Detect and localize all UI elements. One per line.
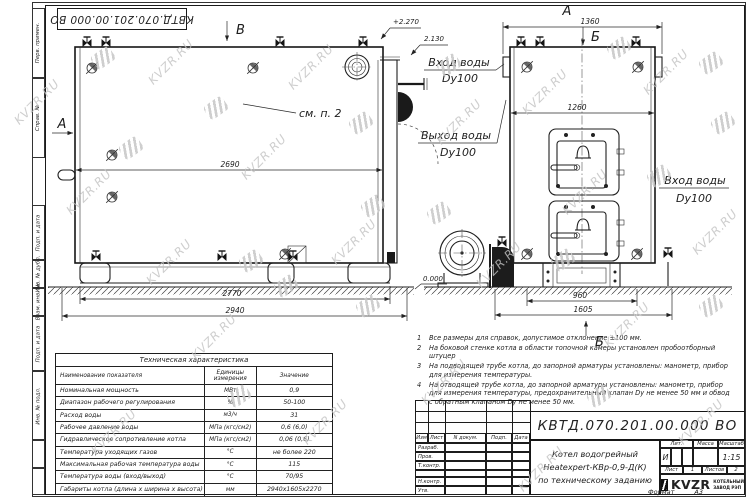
notes-list: 1Все размеры для справок, допустимое отк… <box>417 334 730 408</box>
table-row: Расход водым3/ч31 <box>56 410 332 422</box>
lit-header: Лит. <box>660 440 693 448</box>
outlet-label: Выход воды Dy100 <box>418 100 506 159</box>
side-valve <box>664 248 673 258</box>
table-row: Диапазон рабочего регулирования%50-100 <box>56 397 332 409</box>
section-a-label: А <box>57 117 67 132</box>
col-list: Лист <box>428 433 445 443</box>
margin-box-podp-data-2: Подп. и дата <box>32 316 45 371</box>
front-view <box>503 37 673 287</box>
top-doc-number-stamp: КВТД.070.201.00.000 ВО <box>57 8 187 30</box>
col-izm: Изм <box>415 433 428 443</box>
svg-text:Выход воды: Выход воды <box>421 129 491 142</box>
svg-text:Вход воды: Вход воды <box>664 174 726 187</box>
table-row: Температура воды (вход/выход)°С70/95 <box>56 471 332 483</box>
sheets-label: Листов <box>702 466 727 474</box>
margin-box-podp-data-1: Подп. и дата <box>32 205 45 260</box>
inlet-label-right: Вход воды Dy100 <box>659 174 729 205</box>
table-row: Габариты котла (длина х ширина х высота)… <box>56 484 332 496</box>
safety-valve <box>276 37 285 47</box>
mass-header: Масса <box>693 440 718 448</box>
margin-box-sprav-no: Справ. № <box>32 78 45 158</box>
tech-characteristics-table: Техническая характеристика Наименование … <box>55 353 333 495</box>
see-detail-callout: см. п. 2 <box>299 107 342 120</box>
margin-box-empty-1 <box>32 440 45 468</box>
col-data: Дата <box>512 433 530 443</box>
col-ndokum: N докум. <box>445 433 486 443</box>
dim-2940-value: 2940 <box>225 306 244 315</box>
svg-text:Dy100: Dy100 <box>442 72 478 85</box>
lit-value: И <box>660 448 671 466</box>
scale-value: 1:15 <box>718 448 745 466</box>
margin-box-vzam-inv: Взам. инв. № <box>32 288 45 316</box>
sig-tkontr: Т.контр. <box>415 461 445 470</box>
safety-valve <box>359 37 368 47</box>
inlet-label-top: Вход воды Dy100 <box>424 56 504 85</box>
note-item: 1Все размеры для справок, допустимое отк… <box>417 334 730 343</box>
title-block: Изм Лист N докум. Подп. Дата Разраб. Про… <box>415 400 745 495</box>
flue-duct <box>380 57 438 263</box>
scale-header: Масштаб <box>718 440 745 448</box>
sheet-value: 1 <box>683 466 702 474</box>
margin-box-perv-primen: Перв. примен. <box>32 8 45 78</box>
company-name: КОТЕЛЬНЫЙ ЗАВОД РЭП <box>713 479 744 490</box>
ash-box <box>543 263 620 287</box>
elevation-ground: 0.000 <box>423 275 444 283</box>
drawing-title: Котел водогрейный Heatexpert-КВр-0,9-Д(К… <box>530 440 660 495</box>
fan-valve <box>498 237 507 247</box>
dim-2690-value: 2690 <box>220 160 239 169</box>
mass-value <box>693 448 718 466</box>
revision-grid <box>415 400 530 433</box>
side-view <box>58 37 438 283</box>
view-a-label: А <box>562 4 572 19</box>
dim-960-value: 960 <box>573 291 588 300</box>
table-row: Гидравлическое сопротивление котлаМПа (к… <box>56 434 332 446</box>
sig-nkontr: Н.контр. <box>415 477 445 486</box>
col-podp: Подп. <box>486 433 512 443</box>
format-note: Формат А3 <box>648 488 703 496</box>
elevation-inlet: 2.130 <box>424 35 445 43</box>
dim-2770-value: 2770 <box>222 289 241 298</box>
doc-number: КВТД.070.201.00.000 ВО <box>530 411 745 440</box>
note-item: 3На подводящей трубе котла, до запорной … <box>417 362 730 379</box>
sig-utv: Утв. <box>415 486 445 495</box>
dim-1260-value: 1260 <box>567 103 586 112</box>
sig-razrab: Разраб. <box>415 443 445 452</box>
note-item: 2На боковой стенке котла в области топоч… <box>417 344 730 361</box>
safety-valve <box>83 37 92 47</box>
section-v-label: В <box>236 23 245 38</box>
tech-table-header: Наименование показателя Единицы измерени… <box>56 367 332 385</box>
elevation-top: +2.270 <box>393 18 419 26</box>
table-row: Максимальная рабочая температура воды°С1… <box>56 459 332 471</box>
dim-1605-value: 1605 <box>573 305 592 314</box>
svg-text:Dy100: Dy100 <box>440 146 476 159</box>
table-row: Номинальная мощностьМВт0,9 <box>56 385 332 397</box>
table-row: Рабочее давление водыМПа (кгс/см2)0,6 (6… <box>56 422 332 434</box>
margin-box-empty-2 <box>32 468 45 495</box>
svg-text:Dy100: Dy100 <box>676 192 712 205</box>
sig-prov: Пров. <box>415 452 445 461</box>
section-b-top-label: Б <box>591 30 600 45</box>
sheets-value: 2 <box>727 466 745 474</box>
sheet-label: Лист <box>660 466 683 474</box>
draft-fan <box>438 229 514 288</box>
svg-text:Вход воды: Вход воды <box>428 56 490 69</box>
table-row: Температура уходящих газов°Сне более 220 <box>56 447 332 459</box>
dim-1360-value: 1360 <box>580 17 599 26</box>
safety-valve <box>102 37 111 47</box>
drawing-sheet: 2690 2770 2940 1360 12 <box>0 0 750 500</box>
tech-table-title: Техническая характеристика <box>56 354 332 367</box>
margin-box-inv-podl: Инв. № подл. <box>32 371 45 440</box>
